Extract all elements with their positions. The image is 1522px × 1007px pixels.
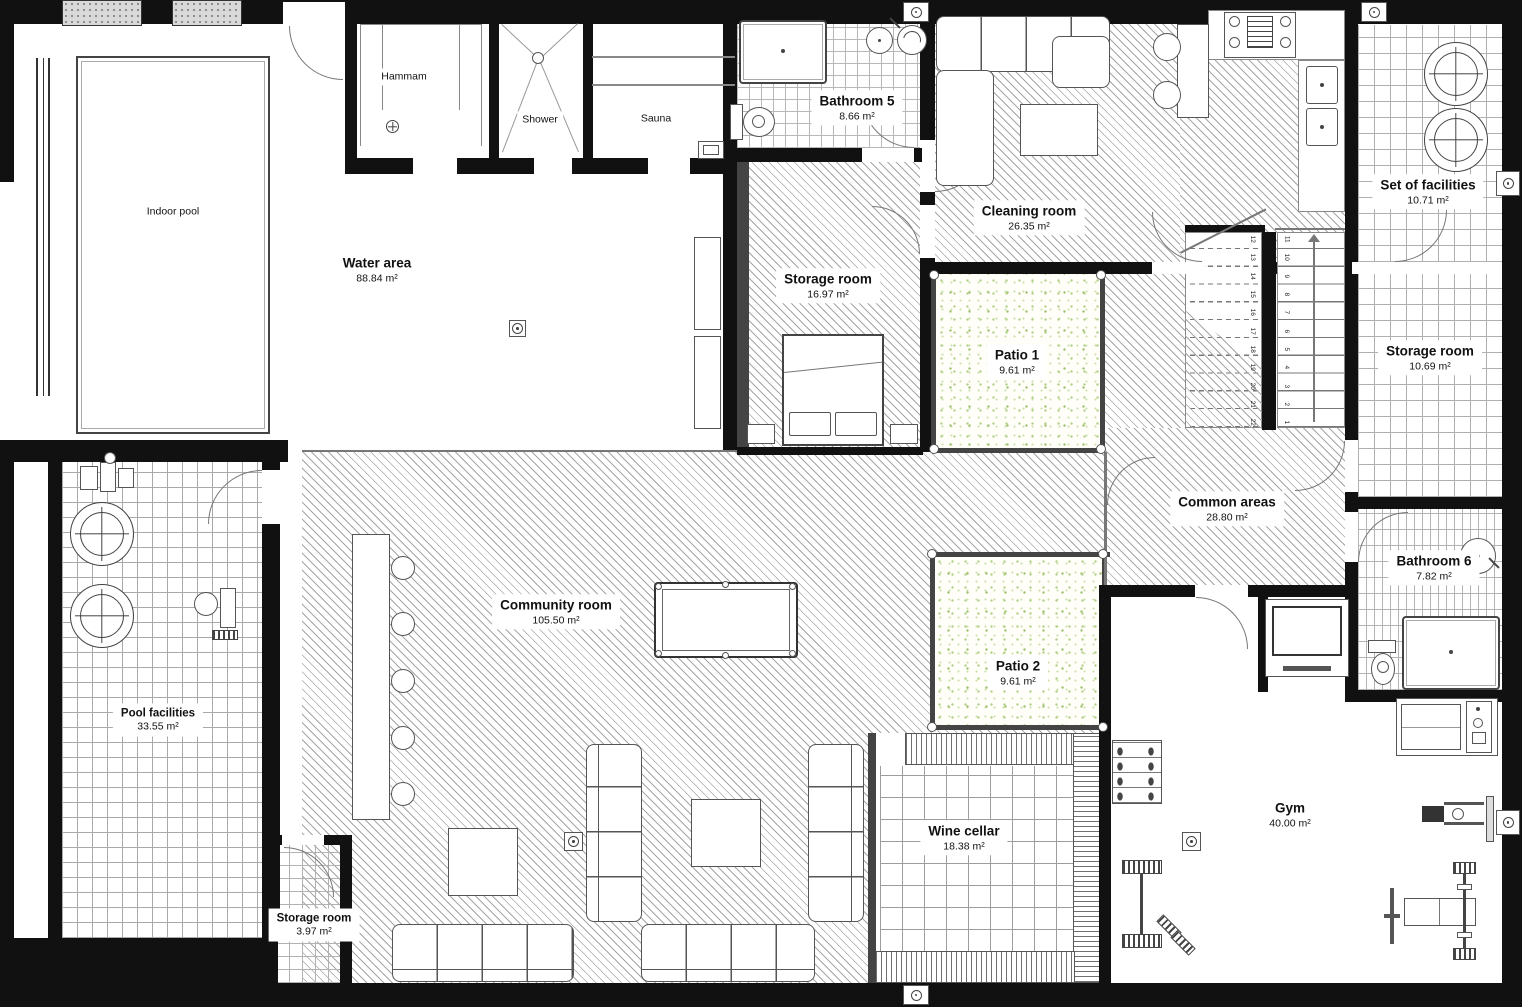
wall-water-bathroom: [723, 10, 737, 450]
cross-line: [388, 126, 398, 127]
billiard-pocket: [722, 652, 729, 659]
stair-arrow-head-icon: [1308, 234, 1320, 242]
room-name: Storage room: [784, 271, 872, 288]
pump-unit: [100, 462, 116, 492]
dumbbell-rack-weights: [1146, 744, 1156, 802]
stair-step-number: 7: [1283, 311, 1290, 315]
bar-stool: [1153, 33, 1181, 61]
stove-burner: [1280, 37, 1291, 48]
room-area: 10.69 m²: [1386, 360, 1474, 373]
door-opening: [283, 2, 345, 24]
floor-marker-icon: [564, 832, 583, 851]
toilet-bowl-inner: [752, 115, 765, 128]
room-name: Bathroom 5: [819, 93, 894, 110]
patio-post: [1098, 549, 1108, 559]
door-opening: [413, 158, 457, 174]
room-label-cleaning-room: Cleaning room 26.35 m²: [974, 200, 1085, 235]
wall-left-top: [0, 0, 14, 182]
storage-cabinet: [694, 237, 721, 330]
stair-step-number: 12: [1249, 236, 1256, 243]
room-name: Storage room: [277, 912, 352, 926]
marker-dot-icon: [1503, 817, 1514, 828]
kitchen-island: [1177, 24, 1209, 118]
stair-step-number: 6: [1283, 329, 1290, 333]
coffee-table: [691, 799, 761, 867]
filter-unit: [220, 588, 236, 628]
door-opening: [1152, 262, 1204, 274]
dumbbell-rack-weights: [1115, 744, 1125, 802]
nightstand: [890, 424, 918, 444]
stair-step-number: 15: [1249, 291, 1256, 298]
tv-stand: [1283, 666, 1331, 671]
door-arc-water-area: [289, 26, 343, 80]
wall-stairs-middle: [1262, 232, 1276, 430]
room-area: 7.82 m²: [1396, 570, 1471, 583]
door-opening: [862, 148, 914, 162]
room-name: Set of facilities: [1380, 177, 1475, 194]
wine-cellar-wall: [868, 733, 876, 983]
patio-post: [929, 444, 939, 454]
shower-line: [502, 58, 539, 153]
door-opening: [1395, 262, 1447, 274]
room-area: 8.66 m²: [819, 110, 894, 123]
section-marker-icon: [1496, 171, 1520, 196]
marker-dot-icon: [568, 836, 579, 847]
room-area: 105.50 m²: [500, 614, 612, 627]
room-name: Hammam: [381, 70, 427, 83]
filter-base: [212, 630, 238, 640]
patio-post: [929, 270, 939, 280]
shower-line: [539, 23, 578, 60]
room-label-storage-room-1: Storage room 16.97 m²: [776, 268, 880, 303]
billiard-cloth: [662, 589, 790, 651]
bar-stool: [391, 669, 415, 693]
billiard-pocket: [722, 581, 729, 588]
room-name: Common areas: [1178, 494, 1276, 511]
room-label-water-area: Water area 88.84 m²: [335, 252, 420, 287]
sauna-heater-core: [703, 145, 719, 155]
wall-bathroom6-top: [1352, 497, 1502, 509]
sauna-bench: [592, 56, 735, 58]
room-label-patio-2: Patio 2 9.61 m²: [988, 655, 1048, 690]
nightstand: [747, 424, 775, 444]
wall-storage1-bottom: [737, 447, 923, 455]
cross-line: [75, 615, 130, 616]
wall-bathroom5-cleaning: [920, 192, 935, 205]
room-label-hammam: Hammam: [376, 68, 432, 85]
stair-step-number: 22: [1249, 419, 1256, 426]
room-label-storage-room-3: Storage room 3.97 m²: [269, 909, 360, 942]
sauna-bench: [592, 84, 735, 86]
exercise-bike-seat: [1422, 806, 1444, 822]
exercise-bike-post: [1486, 796, 1494, 842]
wall-patio2-left: [930, 552, 935, 730]
room-label-bathroom-5: Bathroom 5 8.66 m²: [811, 90, 902, 125]
stove-grill: [1247, 16, 1273, 48]
wall-patio2-bottom: [930, 725, 1110, 730]
floor-marker-icon: [1182, 832, 1201, 851]
marker-dot-icon: [911, 990, 922, 1001]
bench-press-stand: [1384, 914, 1400, 918]
stair-step-number: 2: [1283, 403, 1290, 407]
section-marker-icon: [1496, 810, 1520, 835]
stair-step-number: 13: [1249, 254, 1256, 261]
toilet-bowl-inner: [1377, 661, 1389, 673]
door-arc-gym: [1196, 597, 1248, 649]
filter-unit: [194, 592, 218, 616]
sofa: [586, 744, 642, 922]
exercise-bike-frame: [1444, 822, 1484, 825]
bar-stool: [391, 556, 415, 580]
section-marker-icon: [1361, 2, 1387, 22]
billiard-pocket: [655, 583, 662, 590]
wall-common-community-thin: [1104, 452, 1107, 585]
marker-dot-icon: [1503, 178, 1514, 189]
pump-unit: [80, 466, 98, 490]
bathtub-drain-icon: [781, 49, 785, 53]
wall-concrete-pier: [62, 0, 142, 26]
stair-direction-arrow: [1313, 240, 1315, 422]
window: [36, 58, 50, 396]
cross-line: [1429, 139, 1484, 140]
patio-post: [927, 549, 937, 559]
wall-right: [1502, 0, 1522, 1007]
room-area: 40.00 m²: [1269, 817, 1310, 830]
room-label-storage-room-2: Storage room 10.69 m²: [1378, 340, 1482, 375]
wall-hammam-shower: [489, 10, 499, 170]
room-label-patio-1: Patio 1 9.61 m²: [987, 344, 1047, 379]
exercise-bike-frame: [1444, 802, 1484, 805]
room-name: Storage room: [1386, 343, 1474, 360]
exercise-bike-pedal: [1452, 808, 1464, 820]
storage-cabinet: [694, 336, 721, 429]
marker-dot-icon: [1186, 836, 1197, 847]
wall-patio1-bottom: [933, 448, 1105, 453]
swimming-pool: [76, 56, 270, 434]
room-area: 9.61 m²: [995, 364, 1039, 377]
billiard-pocket: [655, 650, 662, 657]
room-name: Gym: [1269, 800, 1310, 817]
stair-step-number: 1: [1283, 421, 1290, 425]
door-opening: [1195, 585, 1248, 597]
stair-number-column-up: 1234567891011: [1280, 236, 1292, 426]
sofa: [641, 924, 815, 982]
stair-step-number: 17: [1249, 327, 1256, 334]
coffee-table: [1020, 104, 1098, 156]
sink-drain-icon: [1320, 125, 1324, 129]
bar-stool: [391, 782, 415, 806]
toilet-tank: [1368, 640, 1396, 653]
bench-press-collar: [1457, 932, 1472, 938]
room-name: Patio 1: [995, 347, 1039, 364]
stove-burner: [1280, 16, 1291, 27]
stair-step-number: 11: [1283, 236, 1290, 243]
wall-pool-facilities-top: [0, 440, 288, 462]
floor-corridor: [1105, 274, 1185, 428]
wall-patio2-top: [930, 552, 1110, 557]
hammam-bench: [382, 24, 460, 110]
bench-press-plates: [1453, 948, 1476, 960]
room-label-common-areas: Common areas 28.80 m²: [1170, 491, 1284, 526]
stair-step-number: 21: [1249, 401, 1256, 408]
room-area: 33.55 m²: [121, 721, 195, 734]
floor-plan: 1213141516171819202122 1234567891011: [0, 0, 1522, 1007]
wall-left-bottom: [0, 443, 14, 1007]
water-tank: [1424, 108, 1488, 172]
room-label-pool-facilities: Pool facilities 33.55 m²: [113, 704, 203, 737]
dumbbell: [1170, 930, 1195, 955]
marker-dot-icon: [1369, 7, 1380, 18]
room-label-gym: Gym 40.00 m²: [1261, 797, 1318, 832]
console-display: [1472, 732, 1486, 744]
bed-pillow: [835, 412, 877, 436]
stair-step-number: 10: [1283, 254, 1290, 261]
wall-stairs-top-thin: [1275, 228, 1352, 230]
room-label-community-room: Community room 105.50 m²: [492, 594, 620, 629]
stair-step-number: 8: [1283, 292, 1290, 296]
stair-step-number: 5: [1283, 348, 1290, 352]
room-label-set-of-facilities: Set of facilities 10.71 m²: [1372, 174, 1483, 209]
sink-drain-icon: [1320, 83, 1324, 87]
patio-post: [1096, 270, 1106, 280]
room-name: Cleaning room: [982, 203, 1077, 220]
hammam-drain-icon: [386, 120, 399, 133]
pump-unit: [118, 468, 134, 488]
wine-rack: [875, 951, 1075, 983]
room-area: 28.80 m²: [1178, 511, 1276, 524]
patio-post: [927, 722, 937, 732]
marker-dot-icon: [512, 323, 523, 334]
floor-storage-room-2: [1358, 274, 1502, 497]
bench-press-collar: [1457, 884, 1472, 890]
room-name: Indoor pool: [147, 205, 200, 218]
room-name: Sauna: [641, 112, 671, 125]
pool-tank: [70, 584, 134, 648]
patio-post: [1098, 722, 1108, 732]
section-marker-icon: [903, 985, 929, 1005]
wall-patio1-right: [1100, 274, 1105, 453]
bar-counter: [352, 534, 390, 820]
room-area: 26.35 m²: [982, 220, 1077, 233]
washbasin-dot: [878, 39, 881, 42]
shower-drain-icon: [532, 52, 544, 64]
room-name: Wine cellar: [928, 823, 999, 840]
tv-screen: [1272, 606, 1342, 656]
coffee-table: [448, 828, 518, 896]
stove-burner: [1229, 37, 1240, 48]
room-label-wine-cellar: Wine cellar 18.38 m²: [920, 820, 1007, 855]
stair-step-number: 19: [1249, 364, 1256, 371]
room-area: 16.97 m²: [784, 288, 872, 301]
treadmill-belt: [1401, 704, 1461, 750]
wall-shower-sauna: [583, 10, 593, 170]
wall-wine-gym: [1099, 585, 1111, 983]
shower-line: [538, 58, 579, 152]
wall-bottom-left-block: [0, 938, 266, 1007]
room-label-sauna: Sauna: [636, 110, 676, 127]
bathtub-drain-icon: [1449, 650, 1453, 654]
floor-marker-icon: [509, 320, 526, 337]
room-label-shower: Shower: [517, 111, 563, 128]
pump-valve: [104, 452, 116, 464]
toilet-tank: [730, 104, 743, 140]
bed-pillow: [789, 412, 831, 436]
barbell-plates: [1122, 934, 1162, 948]
wall-pool-facilities-left: [48, 458, 62, 938]
room-area: 88.84 m²: [343, 272, 412, 285]
room-name: Pool facilities: [121, 707, 195, 721]
sofa: [392, 924, 574, 982]
stove-burner: [1229, 16, 1240, 27]
sofa: [808, 744, 864, 922]
barbell-plates: [1122, 860, 1162, 874]
billiard-pocket: [789, 583, 796, 590]
section-marker-icon: [903, 2, 929, 22]
bar-stool: [391, 726, 415, 750]
room-name: Shower: [522, 113, 558, 126]
room-area: 18.38 m²: [928, 840, 999, 853]
patio-post: [1096, 444, 1106, 454]
stair-number-column-down: 1213141516171819202122: [1246, 236, 1258, 426]
room-name: Patio 2: [996, 658, 1040, 675]
armchair: [1052, 36, 1110, 88]
stair-step-number: 14: [1249, 272, 1256, 279]
door-opening: [648, 158, 690, 174]
wall-storage1-lining: [737, 162, 749, 447]
wall-concrete-pier: [172, 0, 242, 26]
bar-stool: [1153, 81, 1181, 109]
stair-step-number: 3: [1283, 384, 1290, 388]
pool-tank: [70, 502, 134, 566]
sofa-chaise: [936, 70, 994, 186]
bench-press-plates: [1453, 862, 1476, 874]
marker-dot-icon: [911, 7, 922, 18]
console-button: [1476, 707, 1480, 711]
room-name: Water area: [343, 255, 412, 272]
room-area: 9.61 m²: [996, 675, 1040, 688]
billiard-pocket: [789, 650, 796, 657]
wall-patio1-left: [931, 274, 936, 453]
water-tank: [1424, 42, 1488, 106]
wall-x1345-mid: [1345, 274, 1358, 440]
room-area: 3.97 m²: [277, 926, 352, 939]
floor-patio-2: [933, 555, 1103, 727]
room-name: Bathroom 6: [1396, 553, 1471, 570]
stair-step-number: 16: [1249, 309, 1256, 316]
wine-cellar-grid: [880, 766, 1075, 952]
stair-step-number: 9: [1283, 274, 1290, 278]
room-area: 10.71 m²: [1380, 194, 1475, 207]
cross-line: [1429, 73, 1484, 74]
stair-step-number: 20: [1249, 382, 1256, 389]
wall-bottom: [262, 983, 1522, 1007]
wall-pool-facilities-right: [262, 458, 280, 470]
room-label-indoor-pool: Indoor pool: [142, 203, 205, 220]
wall-hammam-left: [345, 10, 357, 170]
threshold-water-community: [302, 450, 737, 452]
stair-step-number: 4: [1283, 366, 1290, 370]
wall-x1345-upper: [1345, 24, 1358, 262]
door-opening: [534, 158, 572, 174]
stair-step-number: 18: [1249, 346, 1256, 353]
cross-line: [75, 533, 130, 534]
room-label-bathroom-6: Bathroom 6 7.82 m²: [1388, 550, 1479, 585]
door-opening: [282, 835, 324, 845]
room-name: Community room: [500, 597, 612, 614]
console-dial: [1473, 718, 1483, 728]
bar-stool: [391, 612, 415, 636]
